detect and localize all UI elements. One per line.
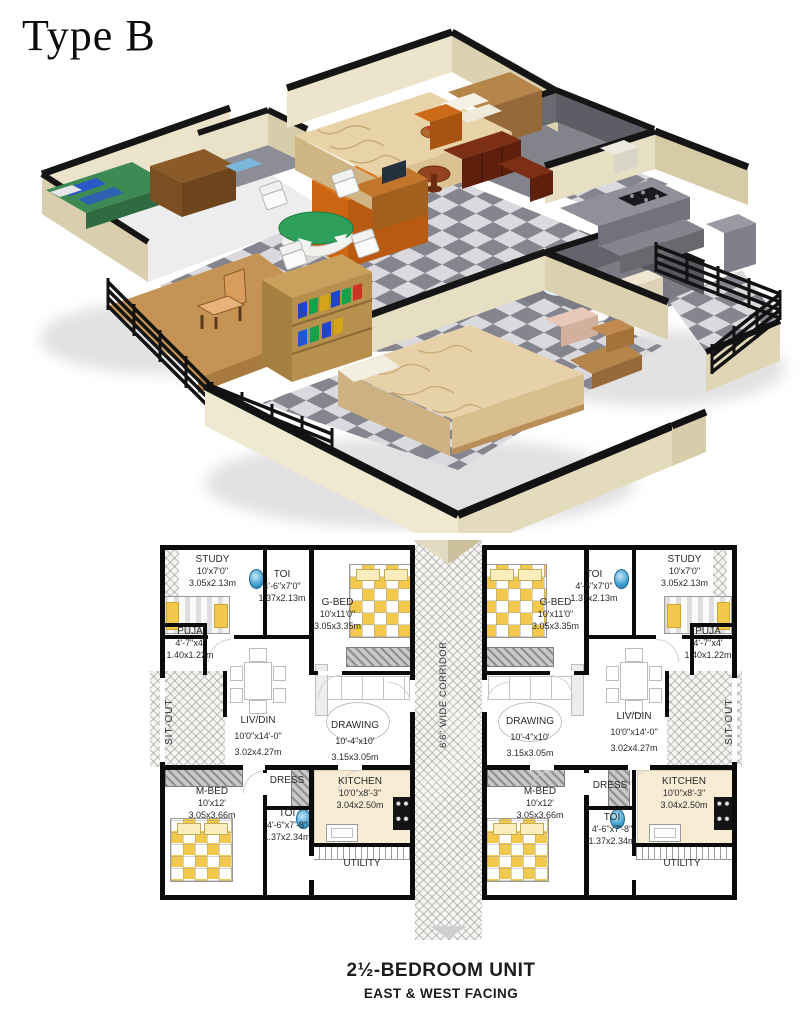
wardrobe-icon — [165, 767, 243, 787]
dining-table-icon-right — [606, 646, 660, 714]
isometric-3d-view — [0, 18, 800, 533]
room-label-sitout-right: SIT-OUT — [724, 686, 735, 758]
room-label-livdin-right: LIV/DIN 10'0"x14'-0" 3.02x4.27m — [594, 710, 674, 758]
room-label-sitout-left: SIT-OUT — [164, 686, 175, 758]
room-label-study-left: STUDY 10'x7'0" 3.05x2.13m — [170, 553, 255, 589]
kitchen-sink-left — [326, 824, 358, 842]
wall-segment — [482, 545, 737, 550]
room-label-study-right: STUDY 10'x7'0" 3.05x2.13m — [642, 553, 727, 589]
room-label-drawing-right: DRAWING 10'-4"x10' 3.15x3.05m — [490, 715, 570, 763]
wall-segment — [632, 545, 636, 635]
mbed-bed-icon-left — [170, 818, 233, 882]
kitchen-sink-right — [649, 824, 681, 842]
wall-segment — [482, 545, 487, 900]
wall-segment — [632, 843, 737, 847]
mbed-bed-icon-right — [486, 818, 549, 882]
wall-segment — [482, 895, 737, 900]
room-label-utility-right: UTILITY — [642, 857, 722, 870]
wall-segment — [482, 765, 737, 770]
door-opening — [628, 765, 650, 770]
room-label-puja-right: PUJA 4'-7"x4' 1.40x1.22m — [678, 625, 738, 661]
door-opening — [410, 680, 415, 712]
wall-segment — [309, 843, 415, 847]
room-label-gbed-left: G-BED 10'x11'0" 3.05x3.35m — [300, 596, 375, 632]
door-swing-arc — [656, 639, 679, 662]
room-label-drawing-left: DRAWING 10'-4"x10' 3.15x3.05m — [315, 719, 395, 767]
room-label-dress-left: DRESS — [257, 774, 317, 787]
room-label-toi-top-right: TOI 4'-6"x7'0" 1.37x2.13m — [566, 568, 622, 604]
room-label-kitchen-left: KITCHEN 10'0"x8'-3" 3.04x2.50m — [320, 775, 400, 811]
wardrobe-icon — [487, 767, 565, 787]
wall-segment — [223, 671, 227, 717]
door-opening — [632, 856, 636, 880]
room-label-toi-bottom-right: TOI 4'-6"x7'-8" 1.37x2.34m — [580, 811, 644, 847]
room-label-puja-left: PUJA 4'-7"x4' 1.40x1.22m — [160, 625, 220, 661]
dining-table-icon-left — [230, 646, 284, 714]
door-opening — [550, 671, 574, 675]
corridor-label: 6'6" WIDE CORRIDOR — [438, 630, 449, 760]
room-label-utility-left: UTILITY — [322, 857, 402, 870]
wardrobe-icon — [486, 647, 554, 667]
wall-segment — [584, 806, 632, 810]
wall-segment — [160, 545, 415, 550]
footer: 2½-BEDROOM UNIT EAST & WEST FACING — [141, 960, 741, 1001]
room-label-dress-right: DRESS — [580, 779, 640, 792]
unit-type-text: 2½-BEDROOM UNIT — [141, 960, 741, 982]
floor-plan-2d: STUDY 10'x7'0" 3.05x2.13m TOI 4'-6"x7'0"… — [150, 540, 742, 948]
room-label-toi-bottom-left: TOI 4'-6"x7'-8" 1.37x2.34m — [255, 807, 319, 843]
room-label-livdin-left: LIV/DIN 10'0"x14'-0" 3.02x4.27m — [218, 714, 298, 762]
door-opening — [530, 765, 554, 770]
facing-text: EAST & WEST FACING — [141, 986, 741, 1001]
door-opening — [318, 671, 342, 675]
room-label-mbed-right: M-BED 10'x12' 3.05x3.66m — [500, 785, 580, 821]
room-label-kitchen-right: KITCHEN 10'0"x8'-3" 3.04x2.50m — [644, 775, 724, 811]
wardrobe-icon — [346, 647, 414, 667]
room-label-mbed-left: M-BED 10'x12' 3.05x3.66m — [172, 785, 252, 821]
door-opening — [309, 856, 314, 880]
door-opening — [482, 680, 487, 712]
door-opening — [243, 765, 265, 770]
wall-segment — [160, 895, 415, 900]
floor-plan-page: { "title": "Type B", "corridor_label": "… — [0, 0, 800, 1013]
